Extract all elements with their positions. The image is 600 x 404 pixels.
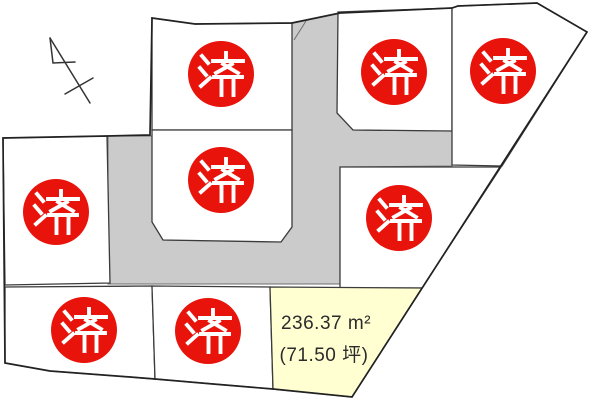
north-arrow-icon	[50, 38, 93, 103]
sold-stamp-icon	[470, 38, 536, 104]
sold-stamp-icon	[366, 185, 432, 251]
sold-stamp-icon	[188, 41, 254, 107]
subdivision-map: 236.37 m² (71.50 坪)	[0, 0, 600, 404]
sold-stamp-icon	[361, 39, 427, 105]
sold-stamp-icon	[175, 298, 241, 364]
sold-stamp-icon	[188, 147, 254, 213]
plot-bottom-right-available[interactable]	[270, 287, 422, 397]
sold-stamp-icon	[51, 297, 117, 363]
sold-stamp-icon	[23, 179, 89, 245]
area-label-tsubo: (71.50 坪)	[280, 344, 369, 366]
area-label-m2: 236.37 m²	[281, 313, 371, 334]
